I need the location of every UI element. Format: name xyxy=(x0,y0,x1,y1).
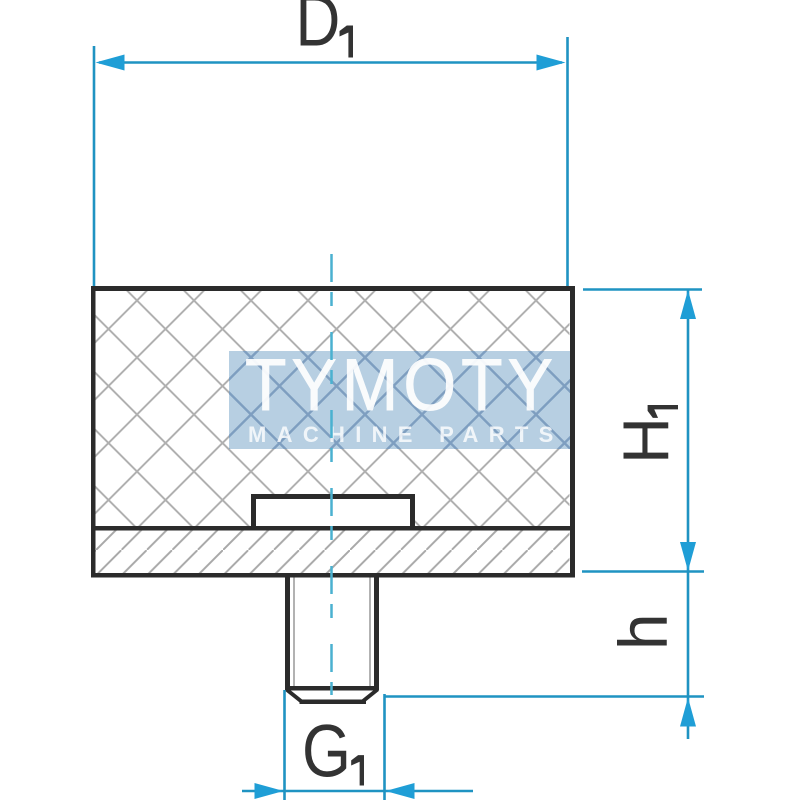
svg-text:H: H xyxy=(609,417,682,464)
svg-text:h: h xyxy=(605,614,682,650)
svg-text:D: D xyxy=(296,0,341,62)
svg-text:MACHINE PARTS: MACHINE PARTS xyxy=(248,422,564,447)
svg-text:G: G xyxy=(302,710,351,793)
svg-text:TYMOTY: TYMOTY xyxy=(245,344,558,426)
